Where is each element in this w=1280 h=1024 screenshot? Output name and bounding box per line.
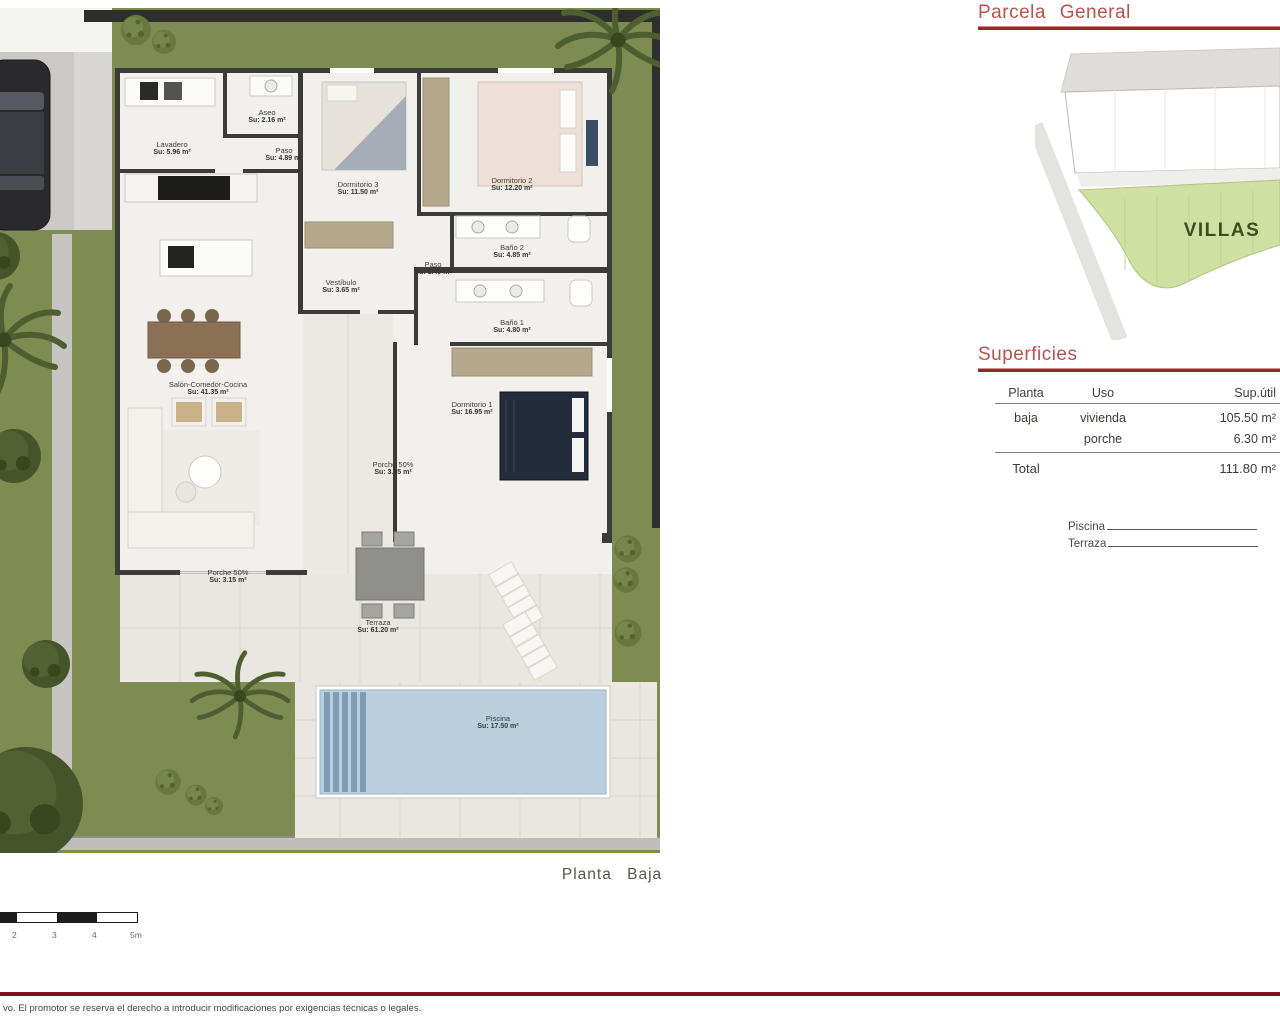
- wardrobe-dormitorio-3: [305, 222, 393, 248]
- superficies-table: Planta Uso Sup.útil baja vivienda 105.50…: [995, 382, 1280, 479]
- site-building: [1065, 86, 1280, 173]
- superficies-rule: [978, 368, 1280, 372]
- sofa-set: [128, 398, 260, 548]
- fillin-line: [1108, 537, 1258, 547]
- total-value: 111.80 m²: [1149, 461, 1280, 476]
- superficies-table-header: Planta Uso Sup.útil: [995, 382, 1280, 404]
- table-total-row: Total 111.80 m²: [995, 453, 1280, 479]
- site-plan: VILLAS: [1035, 40, 1280, 340]
- tv-unit: [586, 120, 598, 166]
- footer-rule: [0, 992, 1280, 996]
- garden-illustration: [0, 8, 660, 853]
- wardrobe-dormitorio-2: [423, 78, 449, 206]
- brochure-page: LavaderoSu: 5.96 m² AseoSu: 2.16 m² Paso…: [0, 0, 1280, 1024]
- scale-label-2: 2: [12, 930, 17, 940]
- superficies-title: Superficies: [978, 344, 1078, 366]
- kitchen-island: [160, 240, 252, 276]
- floor-plan-figure: LavaderoSu: 5.96 m² AseoSu: 2.16 m² Paso…: [0, 8, 660, 853]
- bed-dormitorio-3: [322, 82, 406, 170]
- aseo-fixtures: [250, 76, 292, 96]
- scale-label-3: 3: [52, 930, 57, 940]
- fillin-piscina: Piscina: [1068, 520, 1257, 533]
- fillin-terraza: Terraza: [1068, 537, 1258, 550]
- villas-zone-label: VILLAS: [1184, 220, 1261, 241]
- laundry-counter: [125, 78, 215, 106]
- coffee-table: [189, 456, 221, 488]
- wardrobe-dormitorio-1: [452, 348, 592, 376]
- boundary-wall-bottom: [0, 838, 660, 850]
- car: [0, 60, 50, 230]
- parcela-rule: [978, 26, 1280, 30]
- parcela-general-title: Parcela General: [978, 2, 1131, 24]
- col-header-planta: Planta: [995, 386, 1057, 400]
- boundary-wall-left: [52, 234, 72, 846]
- col-header-sup-util: Sup.útil: [1149, 386, 1280, 400]
- table-row: baja vivienda 105.50 m²: [995, 407, 1280, 428]
- bathroom-2-fixtures: [456, 216, 590, 242]
- table-row: porche 6.30 m²: [995, 428, 1280, 449]
- scale-bar: [0, 912, 138, 923]
- scale-label-4: 4: [92, 930, 97, 940]
- col-header-uso: Uso: [1057, 386, 1149, 400]
- kitchen-counter: [125, 174, 257, 202]
- plan-caption: Planta Baja: [562, 866, 662, 884]
- bathroom-1-fixtures: [456, 280, 592, 306]
- total-label: Total: [995, 461, 1057, 476]
- footer-disclaimer: vo. El promotor se reserva el derecho a …: [3, 1003, 421, 1014]
- scale-label-5m: 5m: [130, 930, 142, 940]
- porch-post: [602, 533, 612, 543]
- pool: [316, 686, 610, 798]
- fillin-line: [1107, 520, 1257, 530]
- perimeter-wall-right: [652, 10, 660, 528]
- site-roof-band: [1061, 48, 1280, 92]
- side-table: [176, 482, 196, 502]
